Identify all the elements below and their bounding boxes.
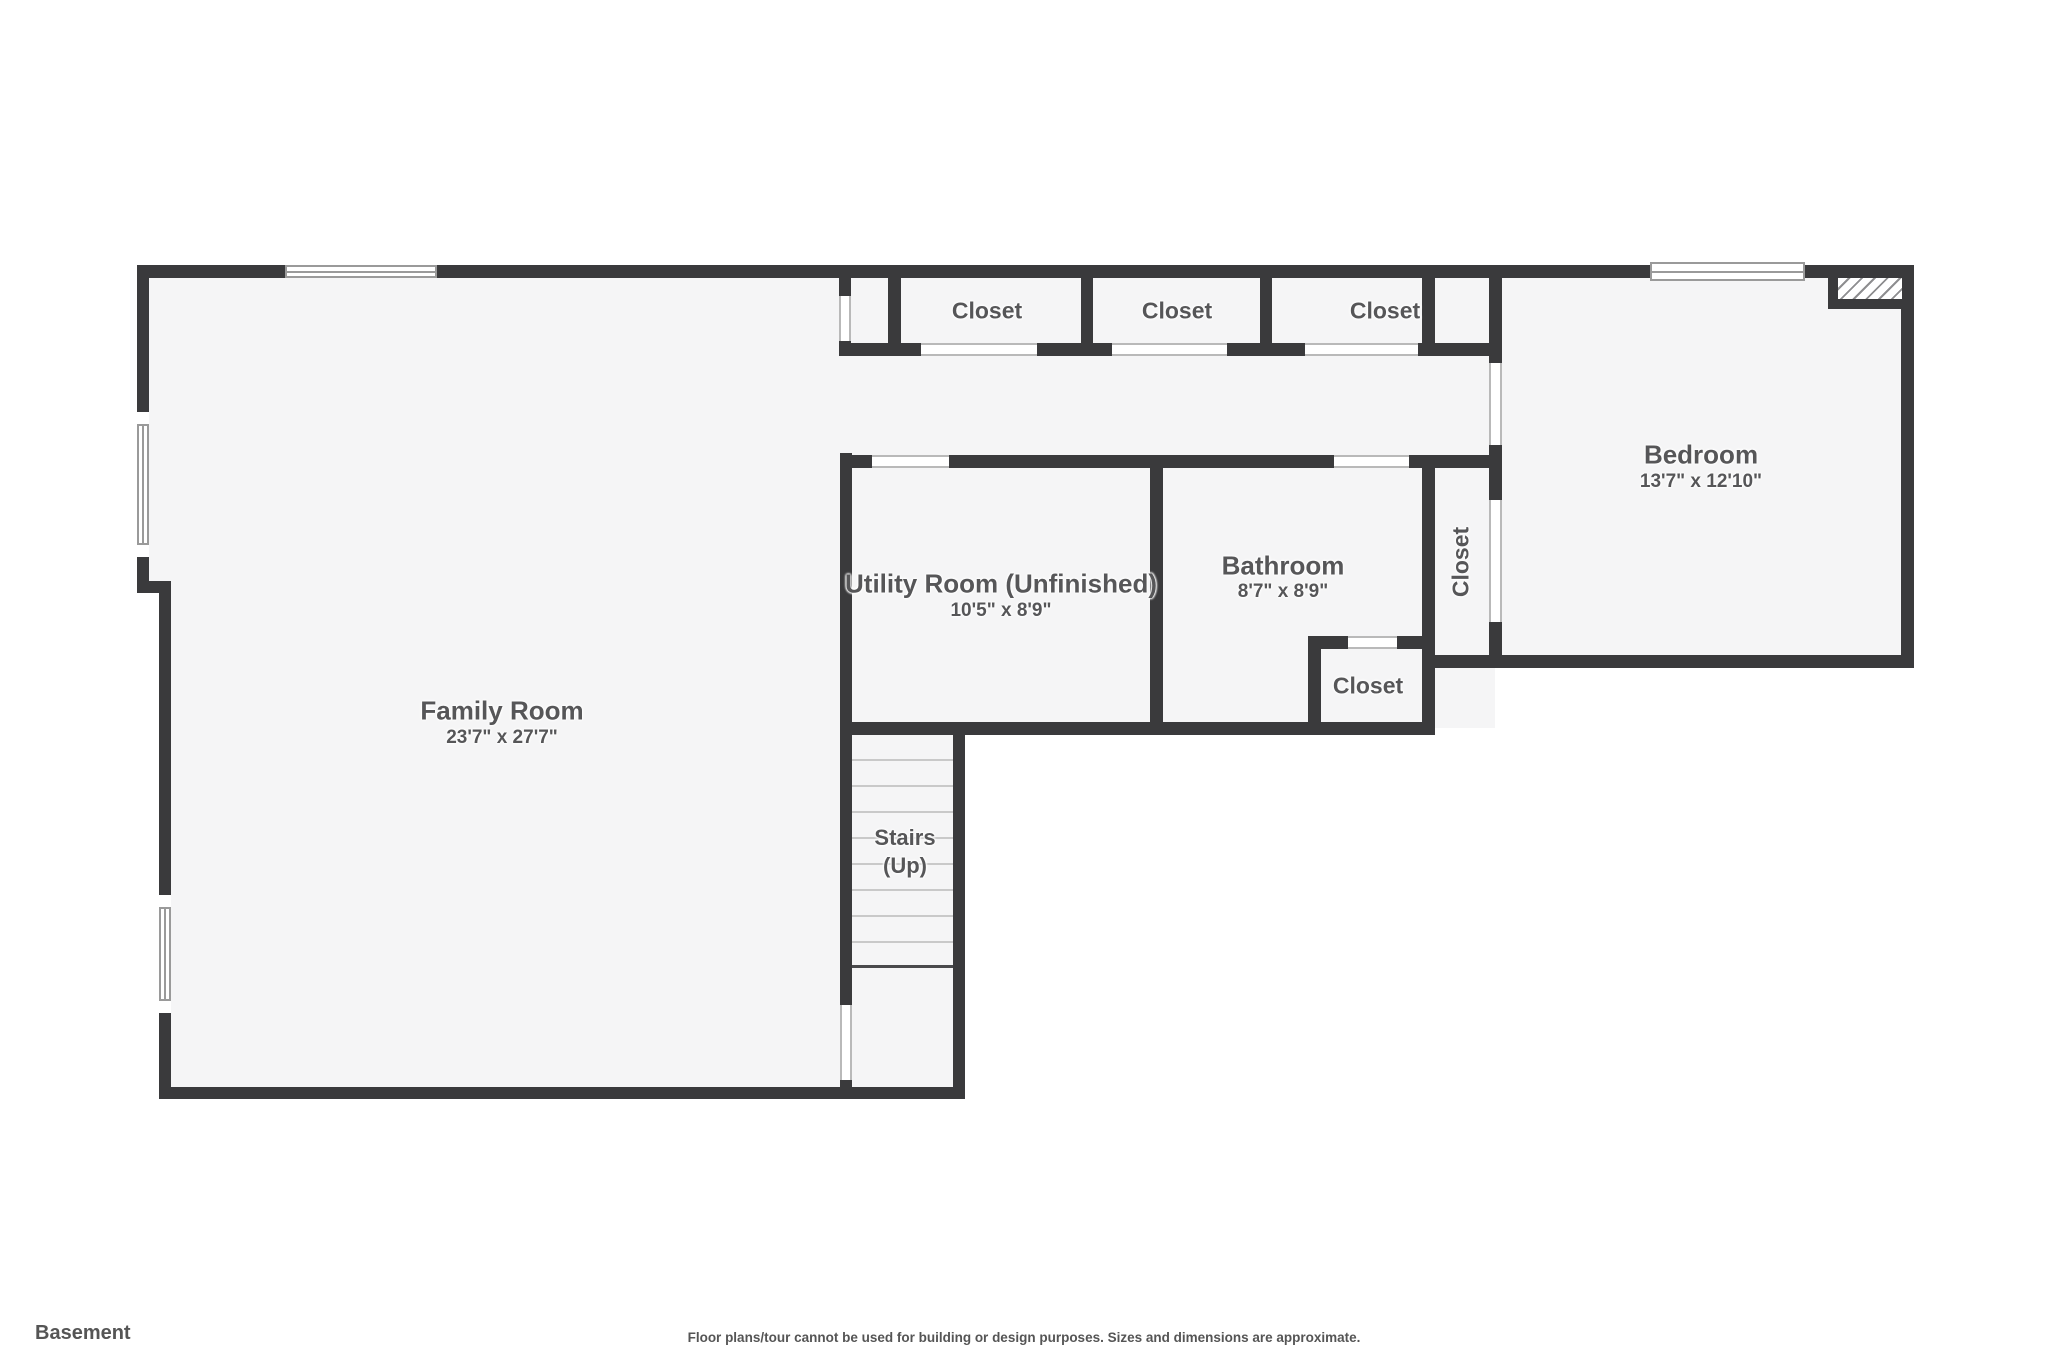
wall-bedroom-bottom	[1432, 655, 1914, 668]
window-family-left-lower	[159, 895, 171, 1013]
bedroom-dimensions: 13'7" x 12'10"	[1640, 471, 1762, 493]
wall-vertcloset-left	[1422, 455, 1435, 735]
window-bedroom-top	[1650, 262, 1805, 281]
family-room-floor-lower	[165, 581, 852, 1093]
wall-bedroom-left-lower	[1489, 622, 1502, 668]
stair-tread	[852, 915, 953, 917]
family-room-label: Family Room	[420, 696, 583, 727]
wall-stairs-left-lower	[840, 1080, 852, 1099]
stair-tread	[852, 785, 953, 787]
wall-smallcloset-left	[1308, 636, 1321, 735]
floor-plan: Family Room 23'7" x 27'7" Utility Room (…	[0, 0, 2048, 1365]
door-bedroom	[1489, 363, 1502, 445]
closet-top-1-label: Closet	[952, 298, 1022, 325]
door-closet1	[921, 343, 1037, 356]
closet-top-2-label: Closet	[1142, 298, 1212, 325]
wall-bedroom-left-mid	[1489, 445, 1502, 500]
utility-room-label: Utility Room (Unfinished)	[845, 569, 1157, 600]
closet-small-label: Closet	[1333, 673, 1403, 700]
closet-vertical-label: Closet	[1448, 527, 1475, 597]
door-closet2	[1112, 343, 1227, 356]
stairs-label: Stairs	[874, 825, 935, 851]
door-utility	[872, 455, 949, 468]
stair-tread	[852, 811, 953, 813]
stair-tread	[852, 889, 953, 891]
closet-top-3-label: Closet	[1350, 298, 1420, 325]
disclaimer-text: Floor plans/tour cannot be used for buil…	[688, 1330, 1361, 1345]
door-smallcloset	[1348, 636, 1397, 649]
hall-utility-bath-floor	[845, 270, 1495, 728]
stair-tread	[852, 759, 953, 761]
family-room-dimensions: 23'7" x 27'7"	[446, 727, 558, 749]
wall-utility-bath-bottom	[840, 722, 1432, 735]
stairwell-floor	[846, 722, 959, 1093]
wall-bedroom-left-upper	[1489, 278, 1502, 363]
door-closet3	[1305, 343, 1418, 356]
window-family-left-upper	[137, 412, 149, 557]
wall-right	[1901, 265, 1914, 668]
door-stairs-landing	[840, 1005, 852, 1080]
opening-vertcloset	[1489, 500, 1502, 622]
bedroom-label: Bedroom	[1644, 440, 1758, 471]
bathroom-label: Bathroom	[1222, 551, 1345, 582]
stair-break-line	[852, 965, 953, 968]
stairs-direction-label: (Up)	[883, 853, 927, 879]
door-bathroom	[1334, 455, 1409, 468]
family-room-floor-upper	[143, 270, 852, 587]
wall-left-lower	[159, 581, 171, 1099]
window-family-top	[285, 265, 437, 278]
chimney-hatch	[1828, 278, 1902, 309]
stair-tread	[852, 941, 953, 943]
bathroom-dimensions: 8'7" x 8'9"	[1238, 581, 1328, 603]
wall-stairs-right	[953, 722, 965, 1099]
floor-name-label: Basement	[35, 1322, 131, 1345]
window-family-stub	[839, 296, 851, 341]
utility-room-dimensions: 10'5" x 8'9"	[950, 600, 1051, 622]
